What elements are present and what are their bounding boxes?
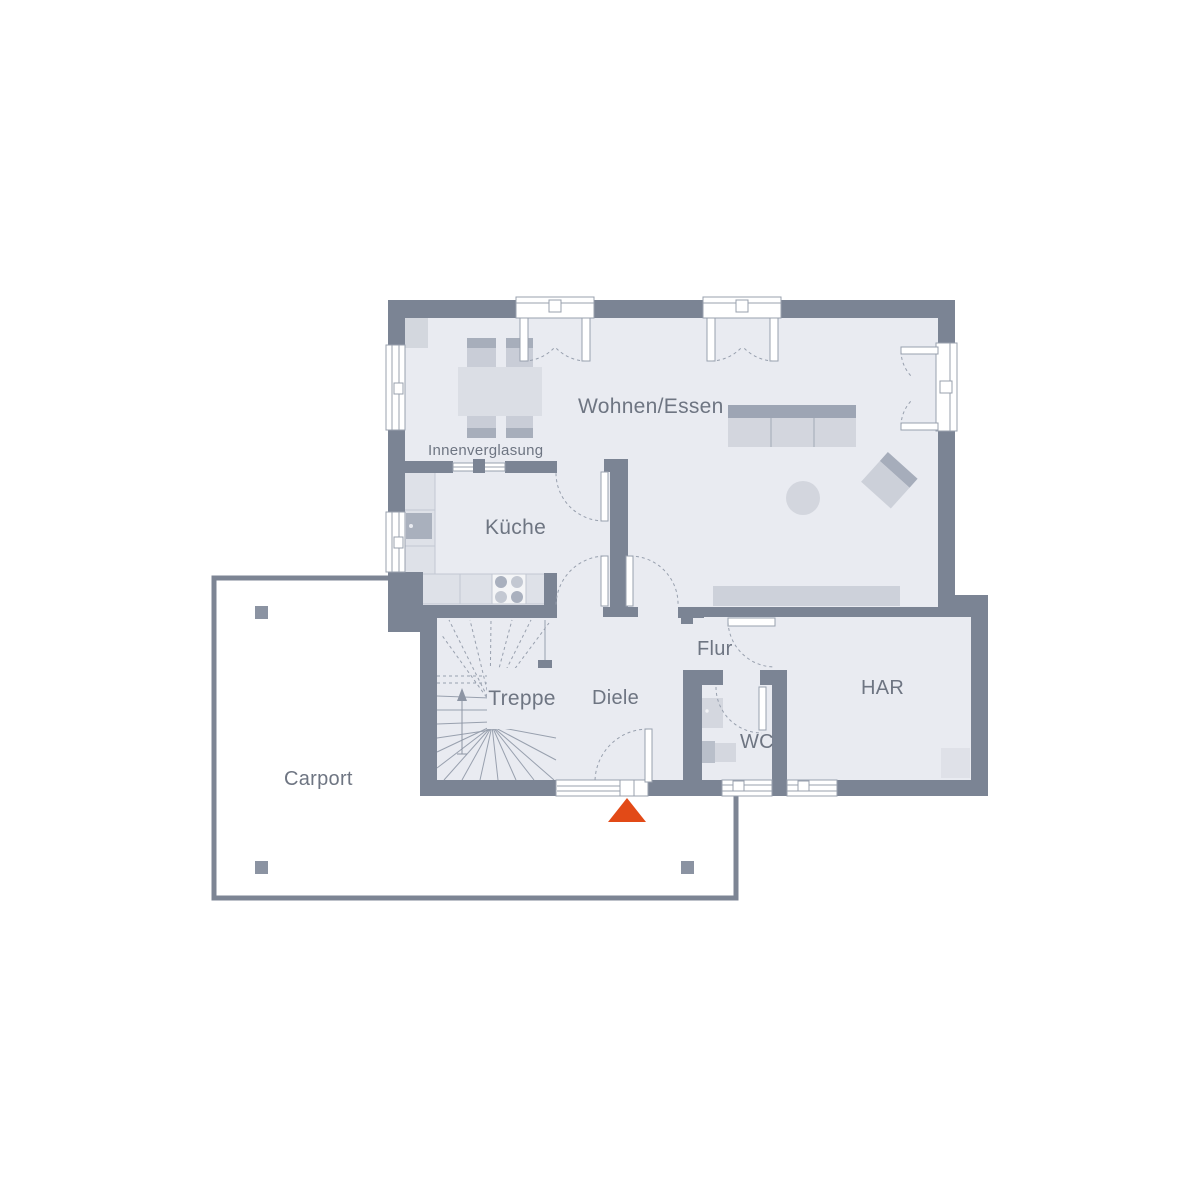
label-kueche: Küche <box>485 516 546 540</box>
dining-chair <box>506 416 533 438</box>
label-innenverglasung: Innenverglasung <box>428 442 543 459</box>
dining-chair <box>467 338 496 367</box>
window-wc-bottom <box>722 780 772 796</box>
dining-table <box>458 367 542 416</box>
carport-post-top-left <box>255 606 268 619</box>
window-har-bottom <box>787 780 837 796</box>
floorplan-canvas: Wohnen/Essen Innenverglasung Küche Trepp… <box>0 0 1200 1200</box>
label-treppe: Treppe <box>488 687 556 711</box>
label-wc: WC <box>740 731 774 754</box>
label-diele: Diele <box>592 687 639 710</box>
toilet-bowl <box>715 743 736 762</box>
label-wohnen-essen: Wohnen/Essen <box>578 395 724 419</box>
wc-sink <box>702 698 723 728</box>
har-shaft <box>941 748 970 778</box>
coffee-table <box>786 481 820 515</box>
window-kitchen-left <box>386 512 405 572</box>
label-flur: Flur <box>697 638 733 661</box>
dining-chair <box>467 416 496 438</box>
carport-post-bottom-right <box>681 861 694 874</box>
carport-post-bottom-left <box>255 861 268 874</box>
label-carport: Carport <box>284 768 353 791</box>
toilet-tank <box>702 741 715 763</box>
sofa <box>728 405 856 447</box>
window-living-left <box>386 345 405 430</box>
sideboard <box>713 586 900 606</box>
floorplan-drawing <box>0 0 1200 1200</box>
label-har: HAR <box>861 677 904 700</box>
